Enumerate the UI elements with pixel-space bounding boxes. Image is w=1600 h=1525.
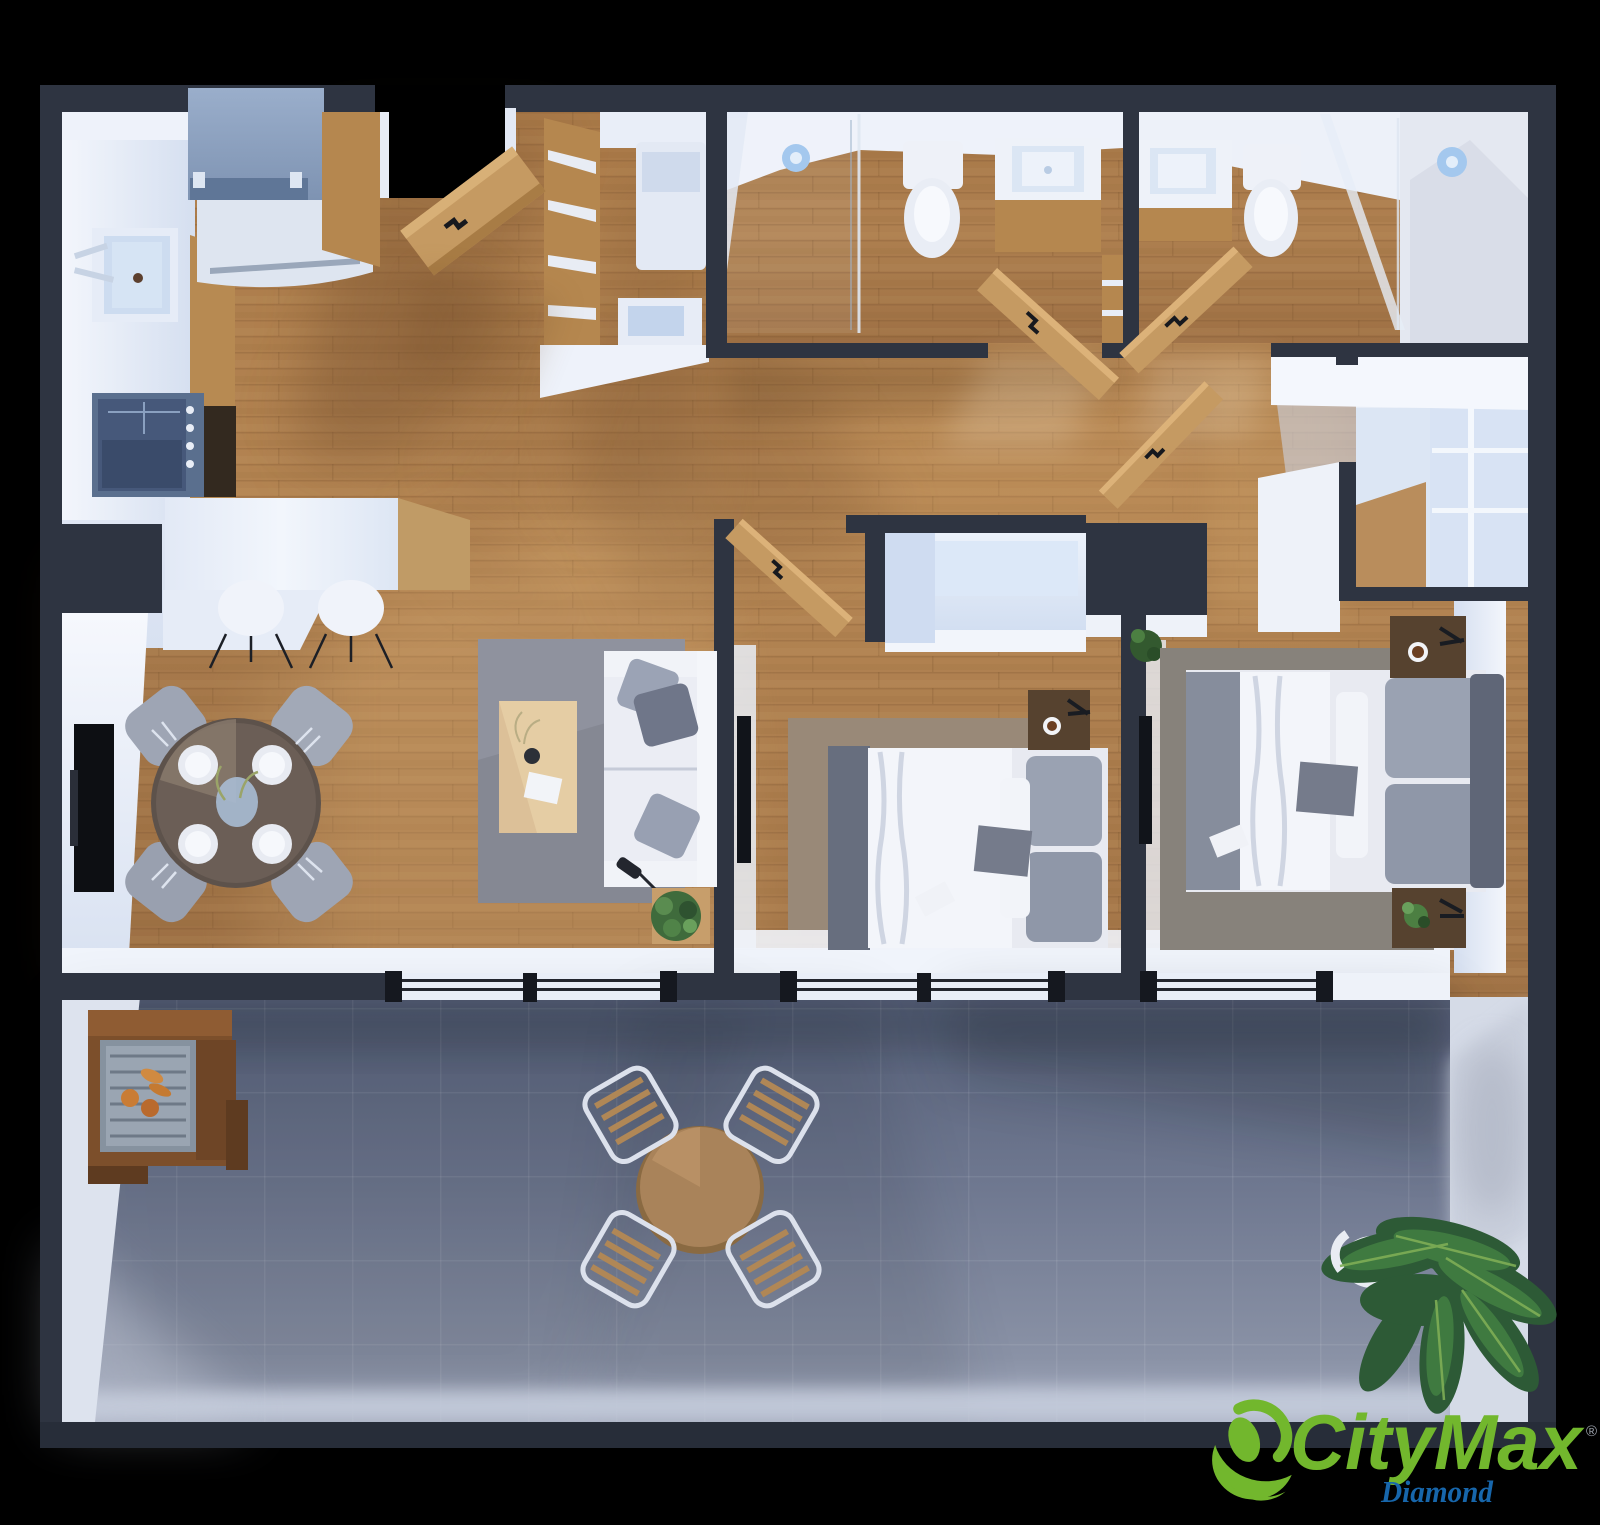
svg-text:Diamond: Diamond xyxy=(1380,1474,1493,1509)
svg-text:®: ® xyxy=(1586,1423,1597,1440)
svg-text:CityMax: CityMax xyxy=(1290,1398,1586,1486)
